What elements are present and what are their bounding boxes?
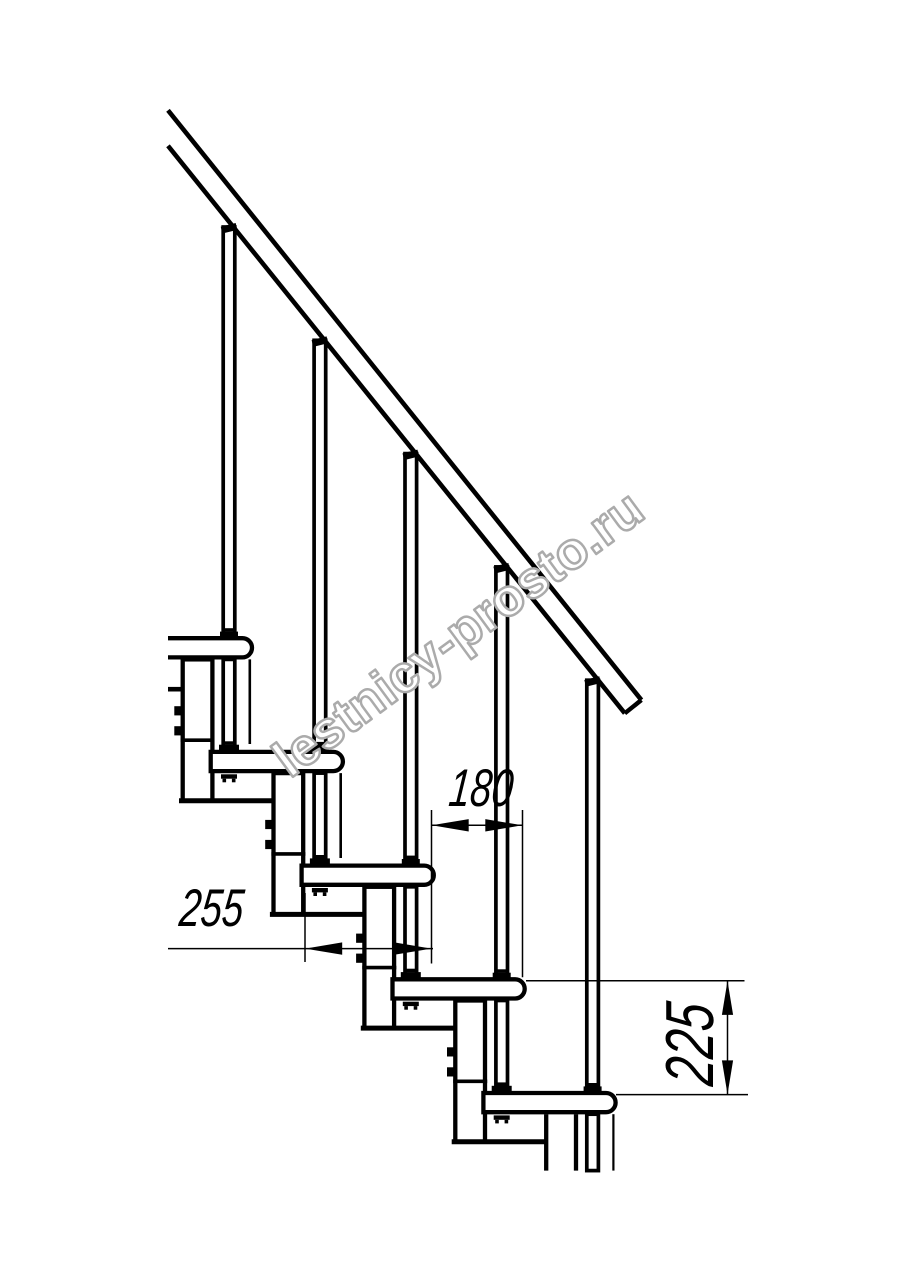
svg-text:180: 180 [446, 759, 516, 818]
svg-text:255: 255 [176, 879, 247, 938]
svg-text:225: 225 [652, 999, 728, 1089]
